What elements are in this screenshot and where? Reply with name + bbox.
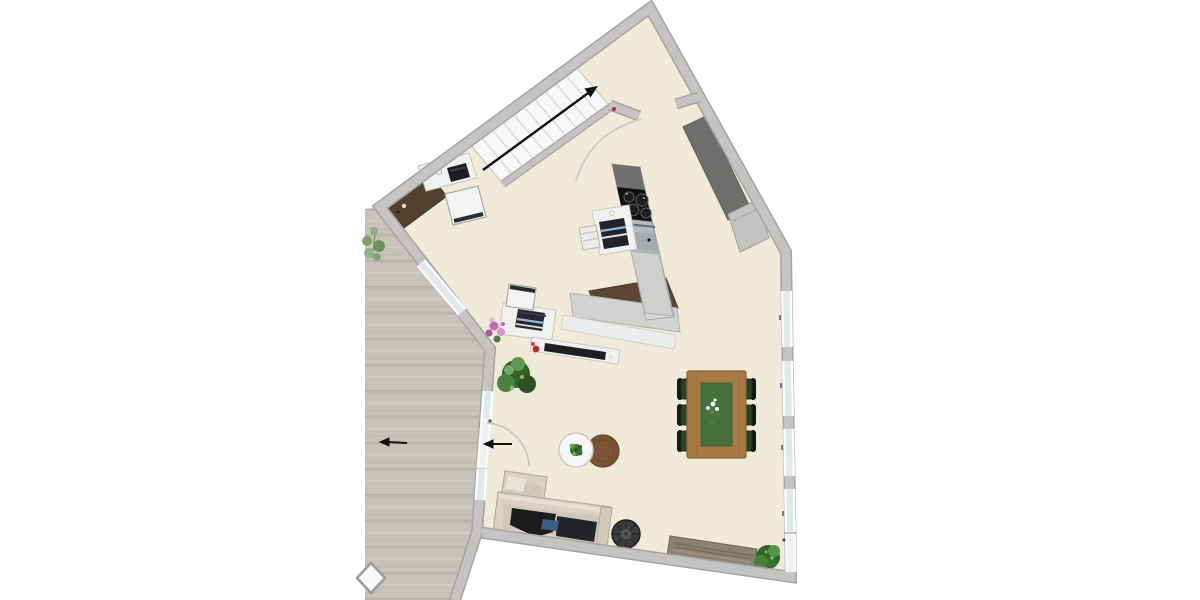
- coffee-table: [559, 433, 593, 467]
- pouf: [612, 520, 640, 548]
- doorway-stub-wall: [676, 97, 699, 104]
- floor-plan-canvas: [0, 0, 1200, 600]
- stool: [579, 225, 600, 250]
- sofa-pillow-blue: [541, 519, 559, 531]
- dining-set: [677, 371, 756, 458]
- table-runner: [701, 383, 732, 446]
- floor-plan-image: [0, 0, 1200, 600]
- door-hinge-marker: [612, 107, 616, 111]
- door-handle: [488, 419, 491, 422]
- office-chair-2: [506, 284, 536, 310]
